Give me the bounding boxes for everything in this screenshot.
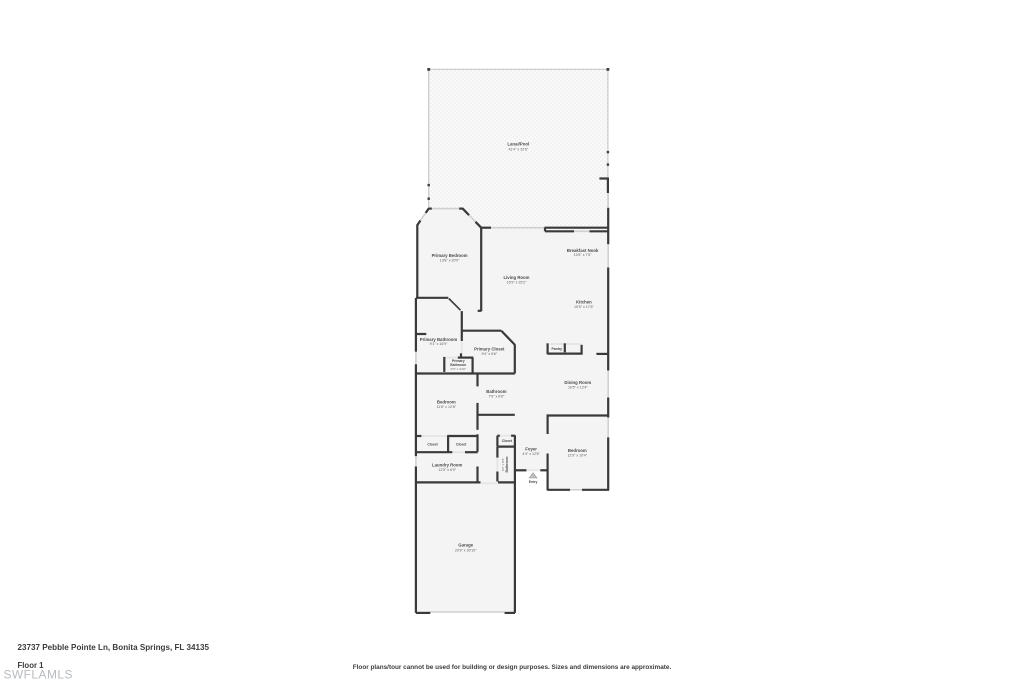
svg-text:Dining Room: Dining Room [564,380,591,385]
svg-text:4'4" x 12'6": 4'4" x 12'6" [522,452,540,456]
svg-text:13'8" x 20'0": 13'8" x 20'0" [440,258,460,262]
svg-text:10'5" x 7'5": 10'5" x 7'5" [574,253,592,257]
svg-text:9'4" x 6'6": 9'4" x 6'6" [481,352,497,356]
svg-text:Bedroom: Bedroom [437,400,456,405]
svg-text:Living Room: Living Room [503,275,529,280]
svg-text:Entry: Entry [529,480,538,484]
svg-text:Breakfast Nook: Breakfast Nook [567,248,599,253]
svg-text:Primary Closet: Primary Closet [474,347,505,352]
svg-text:Closet: Closet [456,442,467,446]
svg-text:7'6" x 6'6": 7'6" x 6'6" [489,395,505,399]
svg-text:Laundry Room: Laundry Room [432,463,462,468]
svg-text:Pantry: Pantry [552,347,563,351]
svg-text:Closet: Closet [427,442,438,446]
svg-text:Bathroom: Bathroom [486,389,506,394]
svg-text:12'9" x 10'4": 12'9" x 10'4" [567,453,587,457]
svg-text:Garage: Garage [458,543,473,548]
svg-text:Closet: Closet [502,439,513,443]
svg-text:Lanai/Pool: Lanai/Pool [507,142,529,147]
svg-text:41'4" x 32'6": 41'4" x 32'6" [508,147,528,151]
svg-text:Floor plans/tour cannot be use: Floor plans/tour cannot be used for buil… [353,664,672,671]
svg-text:Foyer: Foyer [525,447,537,452]
svg-text:9'1" x 16'9": 9'1" x 16'9" [430,342,448,346]
svg-text:12'5" x 6'9": 12'5" x 6'9" [438,468,456,472]
svg-text:11'6" x 12'8": 11'6" x 12'8" [437,405,457,409]
svg-text:15'5" x 17'6": 15'5" x 17'6" [574,305,594,309]
svg-text:0'0" x 4'10": 0'0" x 4'10" [451,367,466,371]
svg-text:Kitchen: Kitchen [576,299,592,304]
svg-text:20'3" x 30'10": 20'3" x 30'10" [455,548,477,552]
svg-text:Primary Bedroom: Primary Bedroom [432,253,468,258]
svg-text:Bedroom: Bedroom [568,448,587,453]
svg-text:15'9" x 25'2": 15'9" x 25'2" [507,281,527,285]
svg-text:10'5" x 12'4": 10'5" x 12'4" [568,386,588,390]
svg-text:23737 Pebble Pointe Ln, Bonita: 23737 Pebble Pointe Ln, Bonita Springs, … [18,643,210,652]
svg-text:Bathroom: Bathroom [505,456,509,472]
svg-text:SWFLAMLS: SWFLAMLS [4,668,73,682]
svg-text:Primary Bathroom: Primary Bathroom [420,337,458,342]
